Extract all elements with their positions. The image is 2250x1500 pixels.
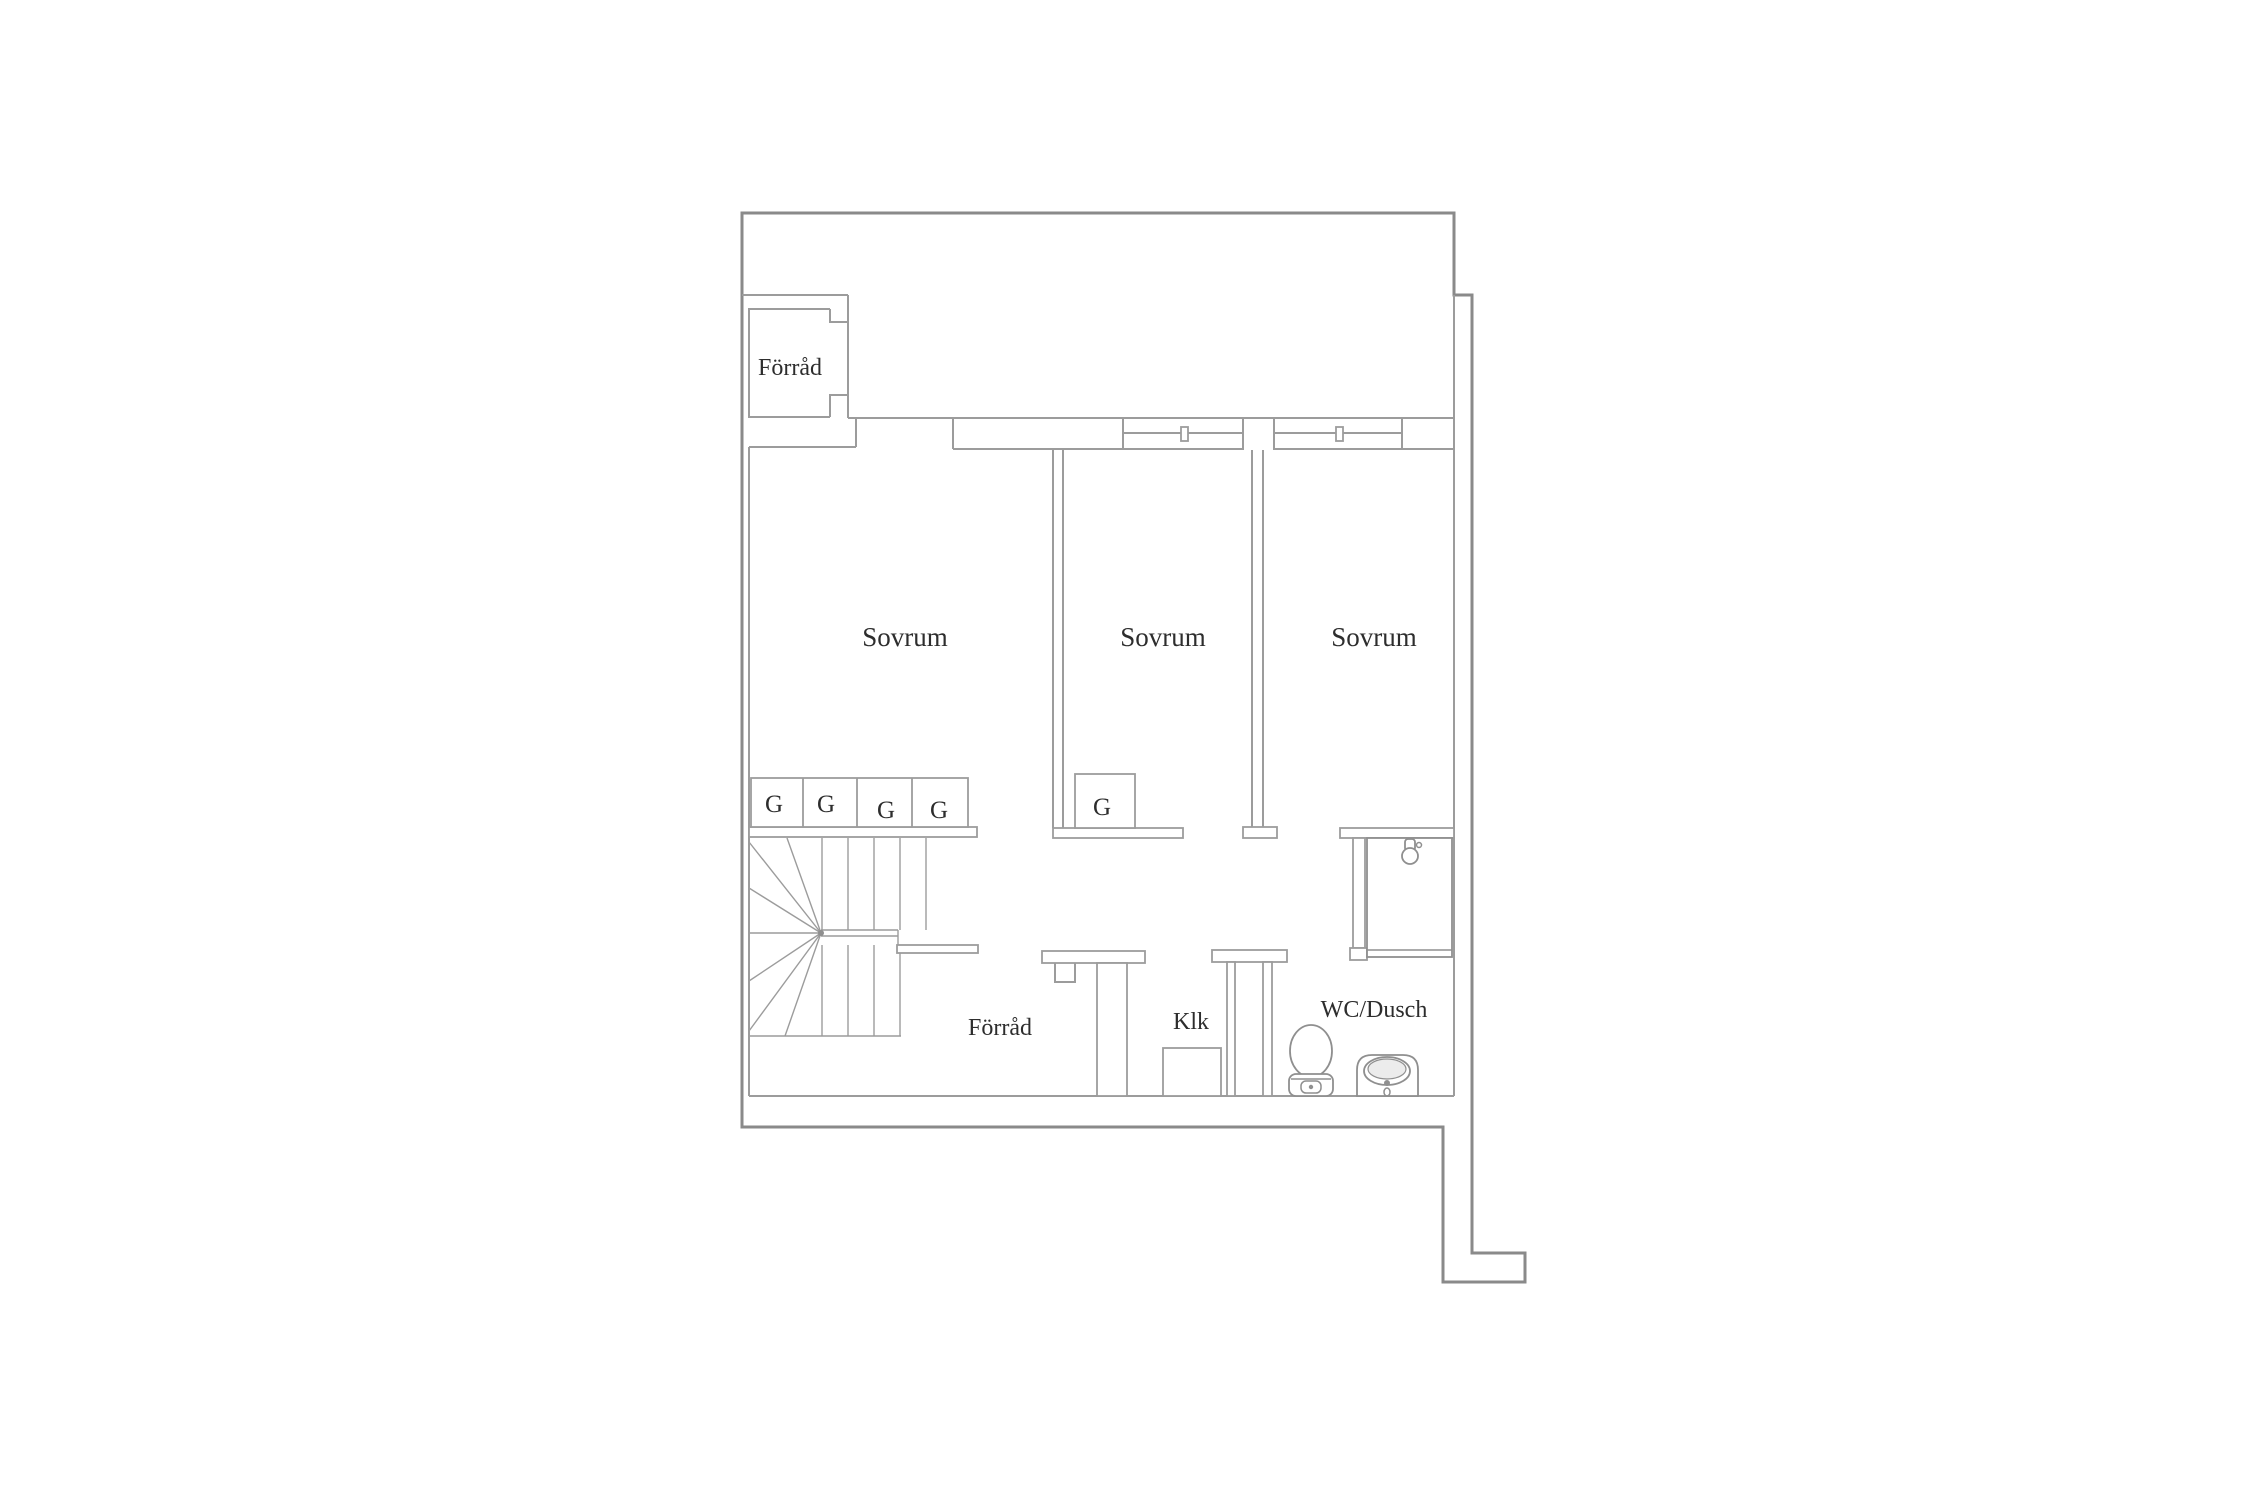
stair-treads-upper [822, 838, 926, 930]
wall-band [1243, 827, 1277, 838]
stairs [749, 838, 926, 1036]
room-labels: Förråd Sovrum Sovrum Sovrum Förråd Klk W… [758, 355, 1427, 1041]
room-label-bedroom-2: Sovrum [1120, 622, 1206, 652]
wardrobe-label: G [817, 791, 835, 818]
shower [1367, 838, 1452, 957]
wall-band [1212, 950, 1287, 962]
room-label-storage-top: Förråd [758, 355, 822, 381]
bathroom-west-wall-foot [1350, 948, 1367, 960]
door-jamb-stub [1055, 963, 1075, 982]
stair-treads-lower [749, 945, 901, 1036]
room-label-walk-in-closet: Klk [1173, 1009, 1209, 1035]
room-label-bedroom-3: Sovrum [1331, 622, 1417, 652]
wall-band [749, 827, 977, 837]
toilet [1289, 1025, 1333, 1096]
floor-plan-canvas: Förråd Sovrum Sovrum Sovrum Förråd Klk W… [0, 0, 2250, 1500]
wall-band [1053, 828, 1183, 838]
outer-boundary [742, 213, 1525, 1282]
stair-winder-fan [749, 838, 821, 1036]
wall-band [1042, 951, 1145, 963]
wall-slab [1263, 962, 1272, 1096]
closet-box [1163, 1048, 1221, 1096]
wall-slab [1227, 962, 1235, 1096]
bathroom-west-wall [1353, 838, 1365, 948]
wall-band [1340, 828, 1454, 838]
sink-faucet-icon [1384, 1080, 1390, 1086]
outer-boundary-path [742, 213, 1525, 1282]
sink [1357, 1055, 1418, 1096]
wardrobe-label: G [877, 797, 895, 824]
wardrobe-label: G [930, 797, 948, 824]
stair-handrail-band [897, 945, 978, 953]
stair-landing-lines [821, 930, 898, 945]
sink-basin-inner [1368, 1059, 1406, 1079]
shower-head-icon [1402, 848, 1418, 864]
wardrobe-label: G [765, 791, 783, 818]
floor-plan-page: Förråd Sovrum Sovrum Sovrum Förråd Klk W… [0, 0, 2250, 1500]
wardrobe-label: G [1093, 794, 1111, 821]
toilet-bowl [1290, 1025, 1332, 1077]
wall-slab [1097, 963, 1127, 1096]
room-label-bathroom: WC/Dusch [1321, 997, 1428, 1023]
room-label-storage-lower: Förråd [968, 1015, 1032, 1041]
window-symbol-icon [1181, 427, 1188, 441]
klk-closet [1163, 1048, 1221, 1096]
window-symbol-icon [1336, 427, 1343, 441]
toilet-flush-dot [1309, 1085, 1313, 1089]
room-label-bedroom-1: Sovrum [862, 622, 948, 652]
stair-newel-post [818, 930, 824, 936]
